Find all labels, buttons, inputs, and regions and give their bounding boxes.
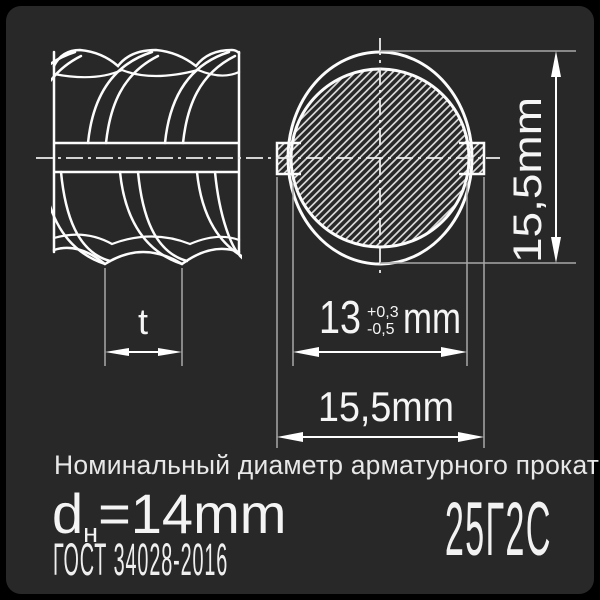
rebar-bottom-silhouette <box>54 248 239 264</box>
page: { "colors": { "background": "#000000", "… <box>0 0 600 600</box>
dim-width-label: 15,5mm <box>318 383 454 430</box>
arrow-left-icon <box>277 432 303 442</box>
dim-height-label: 15,5mm <box>506 97 550 263</box>
steel-grade: 25Г2С <box>445 492 552 568</box>
arrow-right-icon <box>158 348 182 356</box>
dim-core-tol-minus: -0,5 <box>367 321 395 338</box>
rebar-side-view <box>11 50 259 264</box>
arrow-left-icon <box>293 347 319 357</box>
arrow-left-icon <box>105 348 129 356</box>
dim-core-tol-plus: +0,3 <box>367 304 399 321</box>
rebar-upper-ribs <box>11 52 235 143</box>
arrow-up-icon <box>551 51 561 77</box>
dim-pitch-label: t <box>138 301 148 342</box>
standard-reference: ГОСТ 34028-2016 <box>53 537 228 582</box>
dim-core-unit: mm <box>403 294 461 343</box>
dim-rib-pitch: t <box>105 268 182 366</box>
arrow-down-icon <box>551 237 561 263</box>
arrow-right-icon <box>441 347 467 357</box>
arrow-right-icon <box>458 432 484 442</box>
caption-title: Номинальный диаметр арматурного проката <box>54 450 600 481</box>
dim-core-value: 13 <box>319 291 361 343</box>
rebar-cross-section <box>36 38 500 274</box>
